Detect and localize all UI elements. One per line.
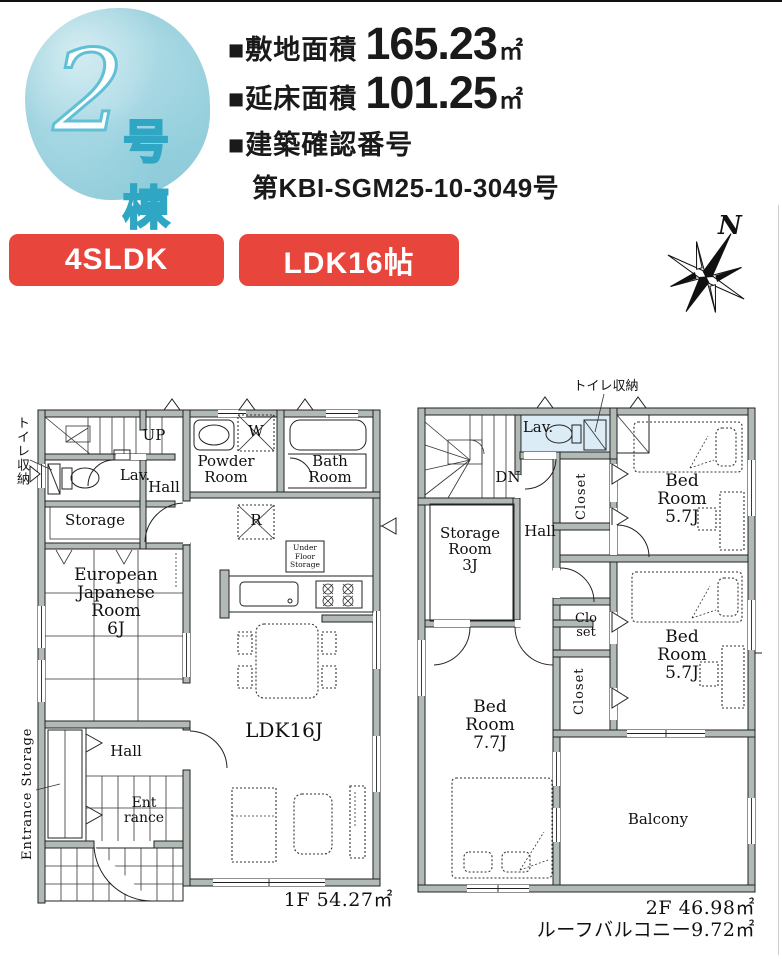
label-fridge: R <box>216 513 296 529</box>
porch <box>45 846 183 901</box>
label-area-1f: 1F 54.27㎡ <box>238 890 393 910</box>
corner-shelf-2f <box>617 415 649 453</box>
bedroom3-furniture <box>452 778 552 878</box>
dining-set <box>238 624 336 698</box>
label-powder-room: PowderRoom <box>186 454 266 486</box>
building-suffix: 号棟 <box>123 106 210 238</box>
label-toilet-storage-2f: トイレ収納 <box>558 380 654 394</box>
label-bedroom1: BedRoom5.7J <box>640 472 724 526</box>
label-under-floor-storage: UnderFloorStorage <box>284 544 326 570</box>
label-bath-room: BathRoom <box>290 454 370 486</box>
compass: N <box>658 213 758 323</box>
label-hall-upper: Hall <box>140 480 188 496</box>
label-hall-lower: Hall <box>98 744 154 760</box>
site-area-row: ■敷地面積 165.23 ㎡ <box>228 20 698 67</box>
label-bedroom2: BedRoom5.7J <box>640 628 724 682</box>
site-area-unit: ㎡ <box>499 31 523 66</box>
floor-plan-1f: トイレ収納 UP Lav. Hall PowderRoom W BathRoom… <box>28 398 400 943</box>
label-closet-top: Closet <box>574 460 589 532</box>
label-dn: DN <box>488 470 528 486</box>
label-closet-low: Closet <box>572 658 587 724</box>
label-washer: W <box>216 424 296 440</box>
compass-icon <box>658 213 758 323</box>
label-storage-room-2f: StorageRoom3J <box>430 526 510 574</box>
label-hall-2f: Hall <box>516 524 564 540</box>
building-number-badge: 2 号棟 <box>25 8 210 200</box>
label-storage-1f: Storage <box>54 513 136 529</box>
vent-marks-1f <box>164 399 313 410</box>
site-area-value: 165.23 <box>365 20 497 67</box>
entrance-storage-closet <box>48 728 102 841</box>
ldk-size-badge: LDK16帖 <box>239 234 459 286</box>
permit-number: 第KBI-SGM25-10-3049号 <box>228 168 698 205</box>
label-up: UP <box>136 428 172 444</box>
label-area-2f: 2F 46.98㎡ <box>597 898 755 918</box>
label-entrance: Entrance <box>114 796 174 826</box>
layout-badge: 4SLDK <box>9 234 224 286</box>
label-roof-balcony: ルーフバルコニー9.72㎡ <box>497 920 755 940</box>
label-european-japanese-room: EuropeanJapanese Room6J <box>56 566 176 638</box>
floor-plan-2f: トイレ収納 DN Lav. Closet BedRoom5.7J Hall St… <box>412 380 762 959</box>
floor-area-unit: ㎡ <box>499 80 523 115</box>
scan-artifact-line <box>778 205 779 955</box>
label-entrance-storage: Entrance Storage <box>20 726 35 862</box>
label-balcony: Balcony <box>608 812 708 828</box>
floor-area-label: ■延床面積 <box>228 77 357 116</box>
permit-label: ■建築確認番号 <box>228 123 698 162</box>
label-ldk: LDK16J <box>226 720 342 741</box>
floor-area-row: ■延床面積 101.25 ㎡ <box>228 69 698 116</box>
floor-area-value: 101.25 <box>365 69 497 116</box>
label-toilet-storage-1f: トイレ収納 <box>12 392 31 510</box>
label-bedroom3: BedRoom7.7J <box>448 698 532 752</box>
flyer-page: 2 号棟 ■敷地面積 165.23 ㎡ ■延床面積 101.25 ㎡ ■建築確認… <box>0 0 782 959</box>
compass-north-label: N <box>718 211 742 241</box>
spec-list: ■敷地面積 165.23 ㎡ ■延床面積 101.25 ㎡ ■建築確認番号 第K… <box>228 20 698 205</box>
label-closet-mid: Closet <box>564 612 608 640</box>
building-number: 2 <box>53 36 124 148</box>
site-area-label: ■敷地面積 <box>228 28 357 67</box>
living-furniture <box>232 786 365 862</box>
label-lav-2f: Lav. <box>516 420 560 436</box>
